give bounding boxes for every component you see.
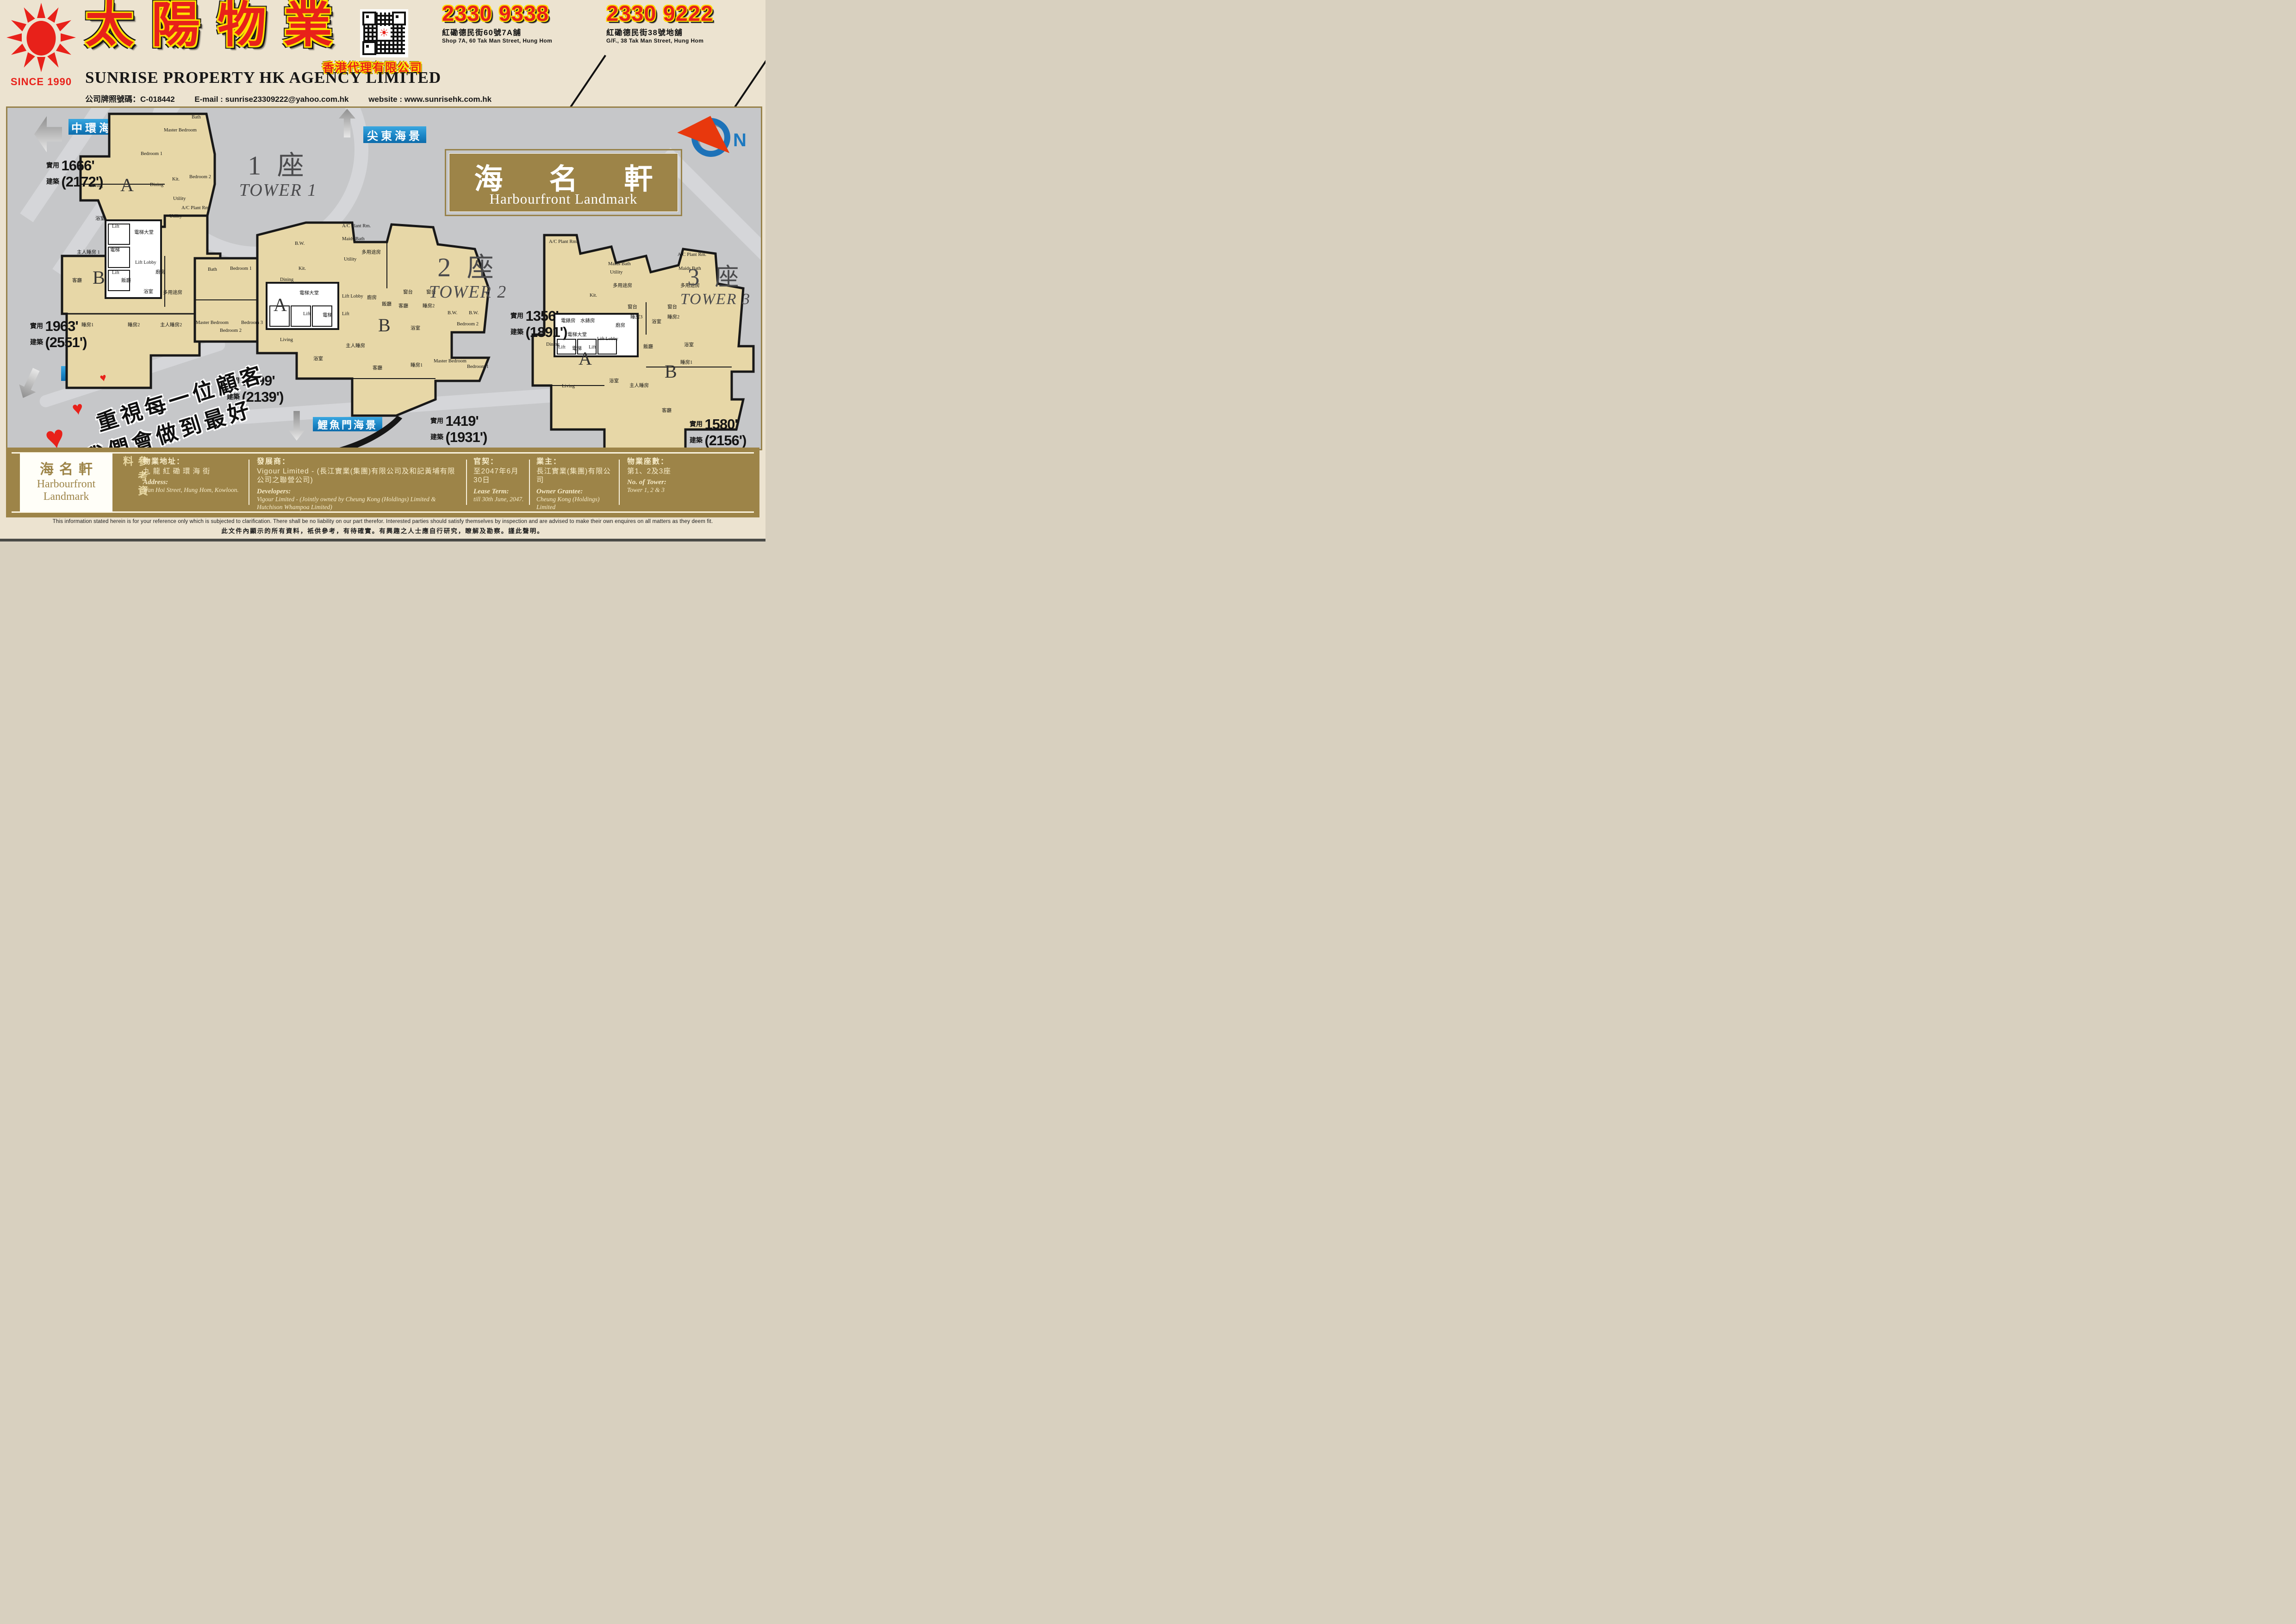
flat-area-label: 實用 1666'建築 (2172') <box>46 158 103 190</box>
room-label: 電梯大堂 <box>299 289 319 296</box>
room-label: Lift Lobby <box>342 294 363 299</box>
owner-label-en: Owner Grantee: <box>536 488 614 496</box>
room-label: 睡房3 <box>630 313 642 320</box>
since-1990-label: SINCE 1990 <box>2 76 81 88</box>
disclaimer: This information stated herein is for yo… <box>0 519 765 535</box>
room-label: A/C Plant Rm. <box>678 252 706 257</box>
tower-2-name: 2 座 TOWER 2 <box>408 254 528 302</box>
project-title-en: Harbourfront Landmark <box>449 191 678 207</box>
heart-icon: ♥ <box>71 398 85 420</box>
address-value-cn: 九龍紅磡環海街 <box>143 467 245 476</box>
footer-towers-section: 物業座數： 第1、2及3座 No. of Tower: Tower 1, 2 &… <box>627 455 697 494</box>
room-label: Lift Lobby <box>135 260 156 265</box>
room-label: Bedroom 3 <box>241 320 263 325</box>
arrow-down-left-icon <box>15 366 45 402</box>
footer-lease-section: 官契： 至2047年6月30日 Lease Term: till 30th Ju… <box>473 455 525 504</box>
room-label: Master Bedroom <box>196 320 229 325</box>
room-label: 水錶房 <box>580 317 595 324</box>
room-label: Bedroom 2 <box>457 322 479 327</box>
room-label: 窗台 <box>628 303 637 310</box>
qr-finder-icon <box>362 41 376 55</box>
flat-area-label: 實用 1356'建築 (1891') <box>510 308 567 340</box>
lease-label-en: Lease Term: <box>473 488 525 496</box>
footer-address-section: 物業地址： 九龍紅磡環海街 Address: Wan Hoi Street, H… <box>143 455 245 494</box>
divider <box>12 452 754 454</box>
room-label: 客廳 <box>72 277 82 284</box>
room-label: 多用途房 <box>163 289 182 296</box>
room-label: 電梯大堂 <box>567 331 587 338</box>
room-label: Utility <box>344 257 356 262</box>
tower-2-name-en: TOWER 2 <box>408 282 528 302</box>
lease-label-cn: 官契： <box>473 455 525 466</box>
room-label: 睡房1 <box>680 359 692 366</box>
room-label: 主人睡房 <box>629 382 649 389</box>
divider <box>249 460 249 505</box>
room-label: 廚房 <box>616 322 625 329</box>
address-value-en: Wan Hoi Street, Hung Hom, Kowloon. <box>143 486 245 494</box>
room-label: 睡房2 <box>423 302 435 309</box>
phone-block-2: 2330 9222 紅磡德民街38號地舖 G/F., 38 Tak Man St… <box>606 2 764 50</box>
room-label: Maids Bath <box>608 261 631 267</box>
room-label: Lift <box>112 270 119 275</box>
phone-grid: 2330 9338 紅磡德民街60號7A舖 Shop 7A, 60 Tak Ma… <box>442 2 764 105</box>
room-label: 客廳 <box>662 407 672 414</box>
room-label: Kit. <box>299 266 306 271</box>
room-label: Maids Bath <box>342 236 365 242</box>
room-label: B.W. <box>295 241 305 246</box>
room-label: Bath <box>208 267 217 272</box>
site-map: 中環海景 尖東海景 北角海景 鯉魚門海景 海名軒 Harbourfront La… <box>6 106 762 450</box>
bottom-edge-strip <box>0 539 765 541</box>
lease-value-en: till 30th June, 2047. <box>473 496 525 504</box>
divider <box>12 511 754 513</box>
shop-address-en: G/F., 38 Tak Man Street, Hung Hom <box>606 37 764 44</box>
tower-3-name-cn: 3 座 <box>662 265 762 291</box>
room-label: Lift <box>303 311 311 317</box>
room-label: Bedroom 1 <box>141 151 162 156</box>
room-label: Kit. <box>172 177 180 182</box>
developer-label-cn: 發展商： <box>257 455 460 466</box>
room-label: Living <box>280 337 293 342</box>
header: SINCE 1990 太陽物業 香港代理有限公司 SUNRISE PROPERT… <box>0 0 765 106</box>
towers-value-en: Tower 1, 2 & 3 <box>627 486 697 494</box>
compass-north-label: N <box>733 130 747 151</box>
room-label: A/C Plant Rm. <box>549 239 578 244</box>
room-label: A <box>274 294 287 316</box>
room-label: 睡房1 <box>411 361 423 368</box>
room-label: 主人睡房 <box>346 342 365 349</box>
room-label: 電梯大堂 <box>134 229 154 236</box>
footer-project-name-cn: 海名軒 <box>20 458 112 478</box>
project-title-box: 海名軒 Harbourfront Landmark <box>449 153 678 212</box>
phone-block-1: 2330 9338 紅磡德民街60號7A舖 Shop 7A, 60 Tak Ma… <box>442 2 600 50</box>
room-label: 浴室 <box>95 215 105 222</box>
footer-project-name-en1: Harbourfront <box>20 478 112 491</box>
qr-code <box>360 9 408 57</box>
disclaimer-en: This information stated herein is for yo… <box>0 519 765 524</box>
room-label: Master Bedroom <box>434 359 467 364</box>
room-label: A/C Plant Rm. <box>342 224 371 229</box>
room-label: 浴室 <box>684 341 694 348</box>
room-label: B <box>93 267 105 288</box>
room-label: 多用途房 <box>613 282 632 289</box>
room-label: Dining <box>280 277 293 282</box>
divider <box>619 460 620 505</box>
room-label: Master Bedroom <box>164 128 197 133</box>
room-label: 電梯 <box>323 311 332 318</box>
room-label: Bedroom 1 <box>230 266 252 271</box>
flat-area-label: 實用 1580'建築 (2156') <box>690 417 746 448</box>
room-label: Utility <box>169 214 182 219</box>
divider <box>466 460 467 505</box>
flat-area-label: 實用 1419'建築 (1931') <box>430 413 487 445</box>
room-label: 浴室 <box>652 318 661 325</box>
room-label: A <box>579 348 592 369</box>
developer-label-en: Developers: <box>257 488 460 496</box>
room-label: 浴室 <box>143 288 153 295</box>
room-label: Living <box>562 384 575 389</box>
heart-icon: ♥ <box>42 417 68 450</box>
footer-project-name-en2: Landmark <box>20 491 112 503</box>
room-label: Utility <box>610 270 622 275</box>
room-label: 浴室 <box>609 377 619 384</box>
owner-label-cn: 業主： <box>536 455 614 466</box>
room-label: A/C Plant Rm. <box>181 205 210 211</box>
shop-address-cn: 紅磡德民街60號7A舖 <box>442 26 600 37</box>
room-label: Lift Lobby <box>597 336 618 342</box>
shop-address-cn: 紅磡德民街38號地舖 <box>606 26 764 37</box>
room-label: Lift <box>112 224 119 229</box>
address-label-cn: 物業地址： <box>143 455 245 466</box>
room-label: Dining <box>546 342 560 347</box>
room-label: B.W. <box>469 311 479 316</box>
room-label: Bath <box>192 115 201 120</box>
qr-finder-icon <box>362 12 376 25</box>
footer-developer-section: 發展商： Vigour Limited - (長江實業(集團)有限公司及和記黃埔… <box>257 455 460 511</box>
qr-center-sun-icon <box>378 26 391 40</box>
lease-value-cn: 至2047年6月30日 <box>473 467 525 485</box>
room-label: 飯廳 <box>643 343 653 350</box>
sun-logo-icon <box>6 3 76 72</box>
room-label: 飯廳 <box>382 300 392 307</box>
divider <box>529 460 530 505</box>
room-label: Utility <box>173 196 186 201</box>
towers-label-en: No. of Tower: <box>627 479 697 486</box>
room-label: A <box>120 174 134 196</box>
tower-1-name: 1 座 TOWER 1 <box>218 152 338 200</box>
room-label: Dining <box>150 182 163 187</box>
footer-owner-section: 業主： 長江實業(集團)有限公司 Owner Grantee: Cheung K… <box>536 455 614 511</box>
room-label: Bedroom 2 <box>220 328 242 333</box>
room-label: B <box>378 314 391 336</box>
room-label: 睡房2 <box>667 313 679 320</box>
tower-2-name-cn: 2 座 <box>408 254 528 282</box>
qr-finder-icon <box>392 12 406 25</box>
footer-project-name-panel: 海名軒 Harbourfront Landmark <box>20 453 112 512</box>
room-label: 睡房2 <box>128 321 140 328</box>
owner-value-en: Cheung Kong (Holdings) Limited <box>536 496 614 511</box>
phone-number: 2330 9338 <box>442 2 600 25</box>
flat-area-label: 實用 1963'建築 (2551') <box>30 318 87 350</box>
address-label-en: Address: <box>143 479 245 486</box>
phone-number: 2330 9222 <box>606 2 764 25</box>
room-label: 飯廳 <box>121 277 131 284</box>
room-label: Bedroom 1 <box>467 364 489 369</box>
tower-1-name-cn: 1 座 <box>218 152 338 180</box>
sea-view-tsim-east: 尖東海景 <box>363 126 426 143</box>
developer-value-cn: Vigour Limited - (長江實業(集團)有限公司及和記黃埔有限公司之… <box>257 467 460 485</box>
room-label: 浴室 <box>411 324 420 331</box>
towers-label-cn: 物業座數： <box>627 455 697 466</box>
room-label: Bedroom 2 <box>189 174 211 180</box>
brand-chinese-title: 太陽物業 <box>85 0 350 51</box>
room-label: Kit. <box>590 293 597 298</box>
room-label: 廚房 <box>156 268 165 275</box>
tower-1-name-en: TOWER 1 <box>218 180 338 200</box>
room-label: 主人睡房 1 <box>77 249 100 255</box>
room-label: 電梯 <box>110 246 120 253</box>
tower-3-name-en: TOWER 3 <box>662 291 762 308</box>
room-label: B <box>665 361 677 382</box>
room-label: 主人睡房2 <box>160 321 182 328</box>
developer-value-en: Vigour Limited - (Jointly owned by Cheun… <box>257 496 460 511</box>
room-label: 客廳 <box>398 302 408 309</box>
disclaimer-cn: 此文件內顯示的所有資料，衹供參考，有待確實。有興趣之人士應自行研究，瞭解及勘察。… <box>0 526 765 535</box>
email-text: E-mail : sunrise23309222@yahoo.com.hk <box>194 95 348 104</box>
tower-3-name: 3 座 TOWER 3 <box>662 265 762 308</box>
room-label: 多用途房 <box>361 249 381 255</box>
room-label: 浴室 <box>313 355 323 362</box>
room-label: Lift <box>342 311 349 317</box>
licence-number: 公司牌照號碼：C-018442 <box>85 95 175 104</box>
brand-english-title: SUNRISE PROPERTY HK AGENCY LIMITED <box>85 68 441 87</box>
towers-value-cn: 第1、2及3座 <box>627 467 697 476</box>
shop-address-en: Shop 7A, 60 Tak Man Street, Hung Hom <box>442 37 600 44</box>
room-label: 廚房 <box>367 294 377 301</box>
flyer-page: SINCE 1990 太陽物業 香港代理有限公司 SUNRISE PROPERT… <box>0 0 765 541</box>
footer-info-bar: 海名軒 Harbourfront Landmark 參考資料 物業地址： 九龍紅… <box>6 448 759 517</box>
owner-value-cn: 長江實業(集團)有限公司 <box>536 467 614 485</box>
room-label: B.W. <box>448 311 457 316</box>
